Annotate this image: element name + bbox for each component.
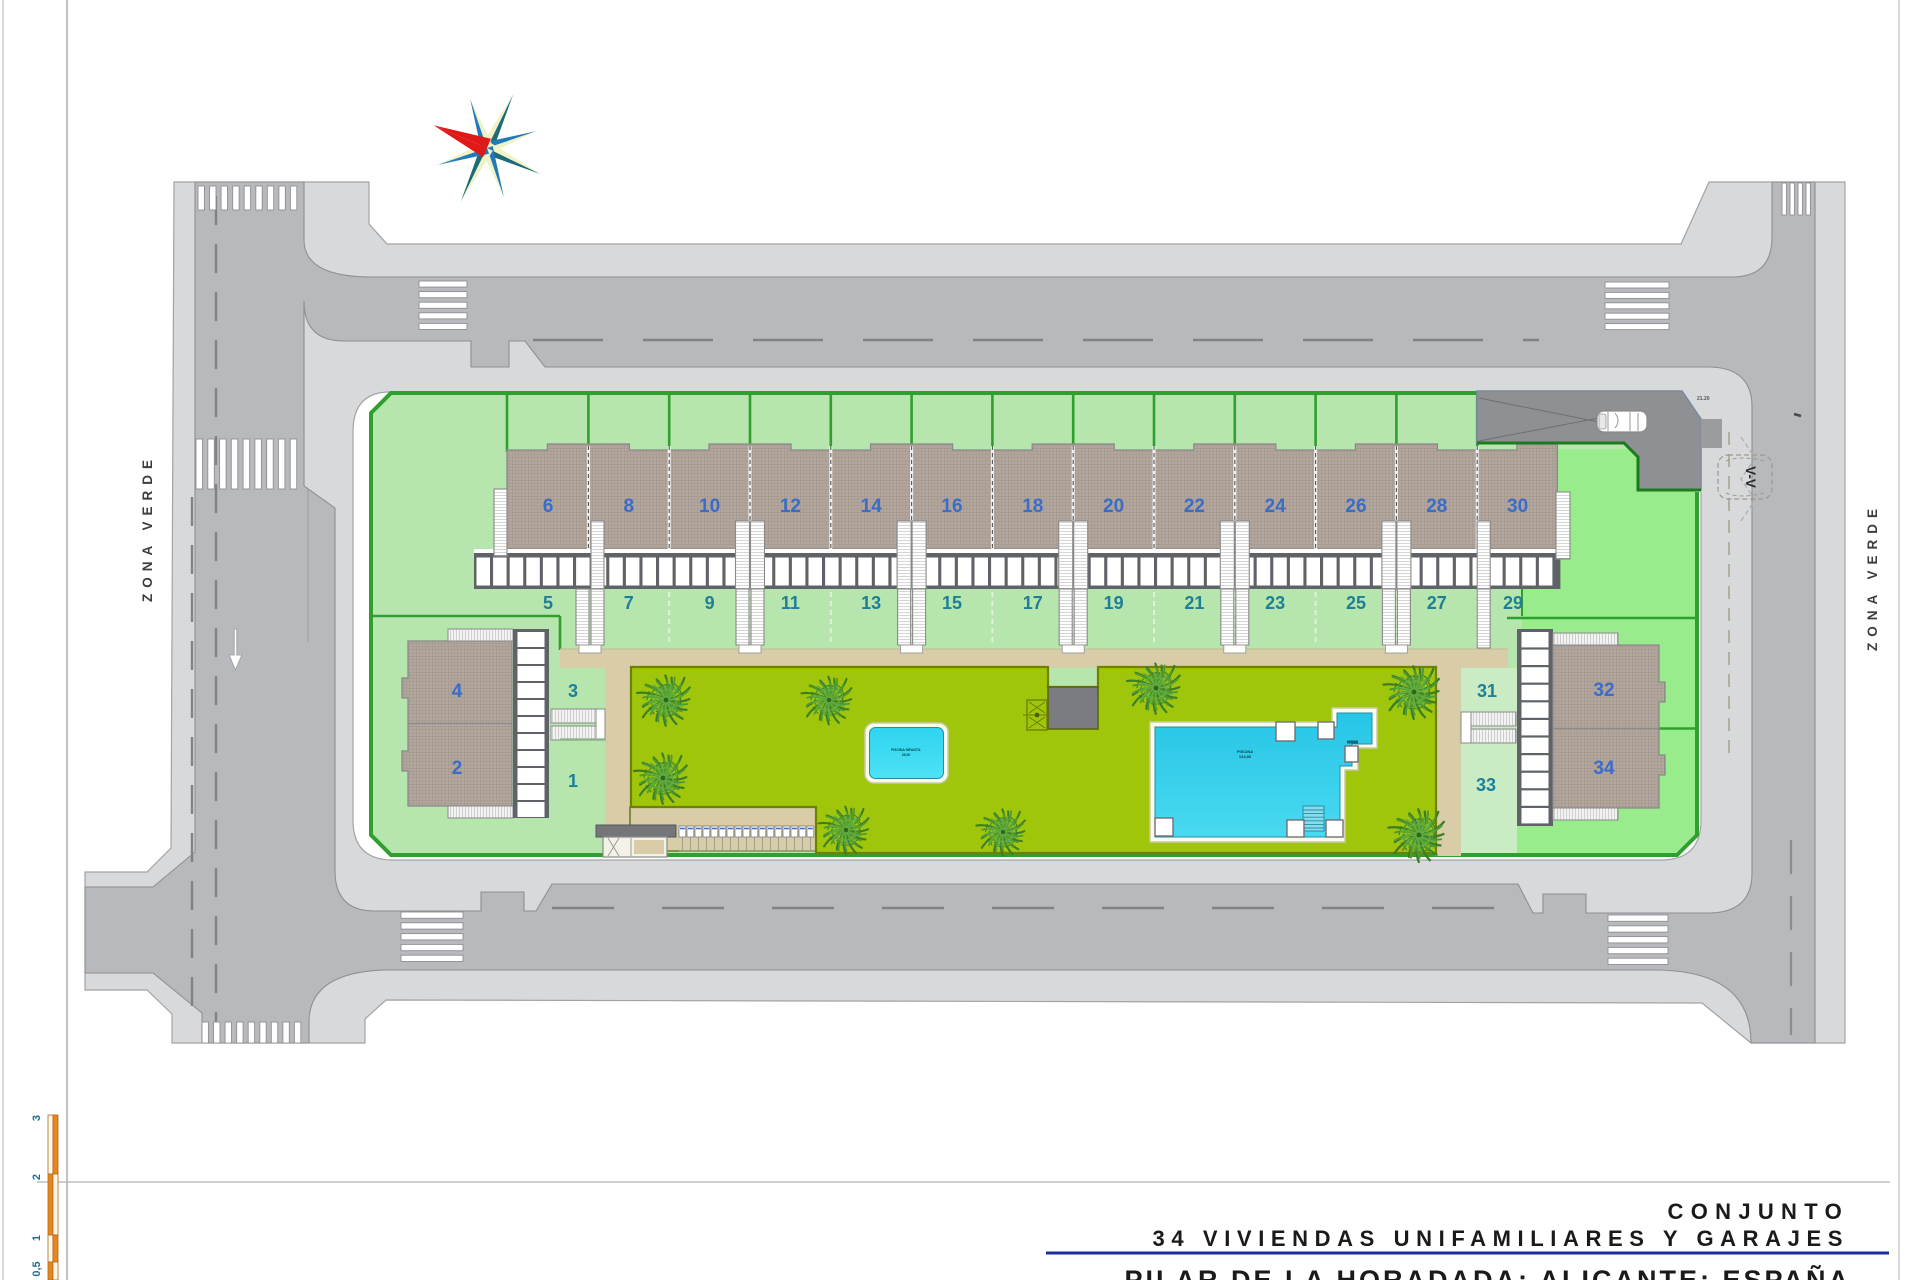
- svg-text:2: 2: [452, 758, 463, 779]
- svg-text:2: 2: [31, 1174, 43, 1180]
- svg-text:5: 5: [543, 593, 553, 613]
- svg-text:11: 11: [781, 593, 800, 613]
- svg-text:21: 21: [1184, 593, 1204, 613]
- svg-text:PISCINA INFANTIL: PISCINA INFANTIL: [891, 748, 921, 752]
- svg-text:V-V: V-V: [1743, 466, 1758, 488]
- svg-text:134,80: 134,80: [1239, 754, 1252, 759]
- svg-text:4: 4: [452, 681, 463, 702]
- svg-text:31: 31: [1477, 681, 1497, 701]
- svg-text:32: 32: [1593, 680, 1614, 701]
- svg-text:18: 18: [1022, 496, 1043, 517]
- svg-text:CONJUNTO: CONJUNTO: [1668, 1199, 1849, 1224]
- svg-text:21.20: 21.20: [1697, 396, 1710, 402]
- svg-text:33: 33: [1476, 775, 1496, 795]
- svg-text:25,00: 25,00: [902, 753, 911, 757]
- svg-text:3: 3: [31, 1115, 43, 1121]
- svg-text:13: 13: [861, 593, 881, 613]
- svg-text:14: 14: [861, 496, 883, 517]
- svg-text:25: 25: [1346, 593, 1366, 613]
- svg-text:17: 17: [1023, 593, 1043, 613]
- svg-text:8: 8: [624, 496, 635, 517]
- svg-text:6: 6: [543, 496, 554, 517]
- svg-text:22: 22: [1184, 496, 1205, 517]
- svg-text:34: 34: [1593, 758, 1615, 779]
- svg-text:1: 1: [31, 1235, 43, 1241]
- svg-text:29: 29: [1503, 593, 1523, 613]
- svg-text:7: 7: [624, 593, 634, 613]
- svg-text:ZONA VERDE: ZONA VERDE: [140, 454, 155, 602]
- svg-text:1: 1: [568, 771, 578, 791]
- svg-text:PILAR DE LA HORADADA; ALICANTE: PILAR DE LA HORADADA; ALICANTE; ESPAÑA: [1125, 1264, 1851, 1280]
- svg-text:0,5: 0,5: [31, 1261, 43, 1276]
- svg-text:12: 12: [780, 496, 801, 517]
- svg-text:24: 24: [1265, 496, 1287, 517]
- svg-text:19: 19: [1104, 593, 1124, 613]
- svg-text:34 VIVIENDAS UNIFAMILIARES Y G: 34 VIVIENDAS UNIFAMILIARES Y GARAJES: [1153, 1226, 1849, 1251]
- svg-text:16: 16: [941, 496, 962, 517]
- svg-text:30: 30: [1507, 496, 1528, 517]
- svg-text:26: 26: [1345, 496, 1366, 517]
- svg-text:20: 20: [1103, 496, 1124, 517]
- svg-text:23: 23: [1265, 593, 1285, 613]
- svg-text:3: 3: [568, 681, 578, 701]
- svg-text:27: 27: [1427, 593, 1447, 613]
- svg-text:9: 9: [705, 593, 715, 613]
- svg-text:15: 15: [942, 593, 962, 613]
- svg-text:ZONA VERDE: ZONA VERDE: [1865, 503, 1880, 651]
- svg-text:10: 10: [699, 496, 720, 517]
- svg-text:28: 28: [1426, 496, 1447, 517]
